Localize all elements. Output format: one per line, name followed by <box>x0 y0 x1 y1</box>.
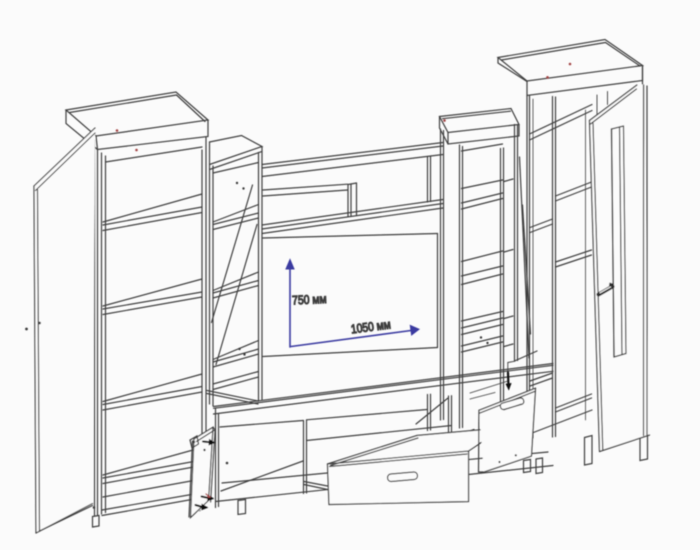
svg-text:750 мм: 750 мм <box>292 292 327 307</box>
